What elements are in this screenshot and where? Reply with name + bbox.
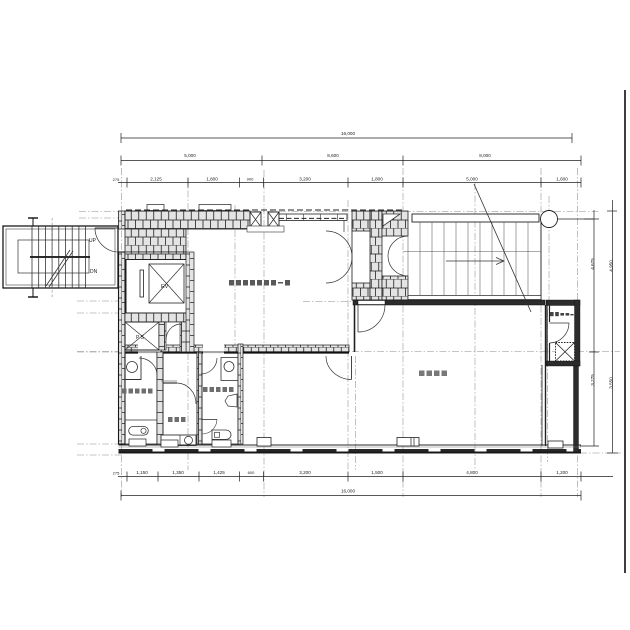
svg-text:1,800: 1,800 xyxy=(206,177,218,182)
svg-text:1,425: 1,425 xyxy=(213,470,225,475)
svg-text:DN: DN xyxy=(90,269,98,275)
svg-text:P S: P S xyxy=(136,335,145,341)
svg-text:1,500: 1,500 xyxy=(371,470,383,475)
svg-text:UP: UP xyxy=(89,238,97,244)
svg-text:600: 600 xyxy=(248,470,255,475)
svg-text:2,125: 2,125 xyxy=(150,177,162,182)
svg-text:3,550: 3,550 xyxy=(609,377,614,389)
svg-text:900: 900 xyxy=(247,177,254,182)
svg-text:275: 275 xyxy=(113,471,120,476)
svg-text:4,675: 4,675 xyxy=(590,258,595,270)
svg-text:16,000: 16,000 xyxy=(341,489,355,494)
svg-text:4,800: 4,800 xyxy=(466,470,478,475)
svg-text:3,200: 3,200 xyxy=(299,177,311,182)
svg-text:1,600: 1,600 xyxy=(556,177,568,182)
svg-text:3,275: 3,275 xyxy=(590,374,595,386)
svg-text:1,800: 1,800 xyxy=(371,177,383,182)
svg-text:16,000: 16,000 xyxy=(341,131,355,136)
svg-text:3,200: 3,200 xyxy=(299,470,311,475)
svg-text:1,350: 1,350 xyxy=(172,470,184,475)
svg-text:5,000: 5,000 xyxy=(184,153,196,158)
svg-text:8,000: 8,000 xyxy=(479,153,491,158)
svg-text:1,150: 1,150 xyxy=(136,470,148,475)
svg-text:EV: EV xyxy=(161,284,169,290)
svg-text:5,000: 5,000 xyxy=(466,177,478,182)
svg-text:8,600: 8,600 xyxy=(327,153,339,158)
svg-text:4,950: 4,950 xyxy=(609,260,614,272)
svg-text:275: 275 xyxy=(113,177,120,182)
svg-text:1,200: 1,200 xyxy=(556,470,568,475)
